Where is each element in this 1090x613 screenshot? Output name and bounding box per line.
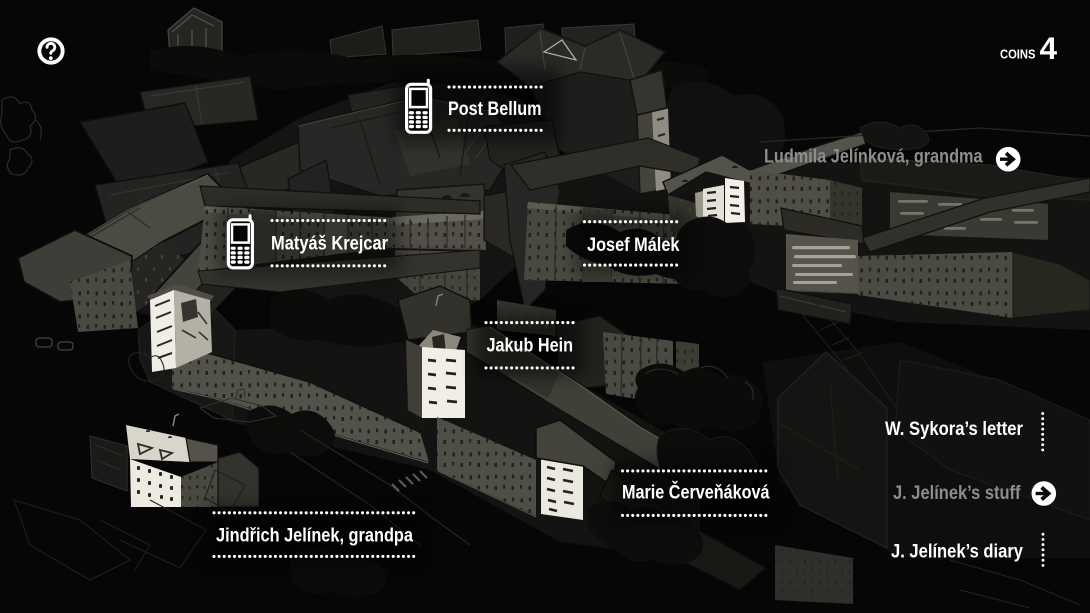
svg-text:Matyáš Krejcar: Matyáš Krejcar bbox=[271, 234, 389, 255]
svg-text:J. Jelínek’s diary: J. Jelínek’s diary bbox=[891, 542, 1023, 563]
svg-text:Ludmila Jelínková, grandma: Ludmila Jelínková, grandma bbox=[764, 147, 983, 168]
svg-text:Post Bellum: Post Bellum bbox=[448, 99, 542, 120]
svg-text:COINS: COINS bbox=[1000, 47, 1036, 61]
svg-text:4: 4 bbox=[1040, 30, 1058, 66]
svg-text:J. Jelínek’s stuff: J. Jelínek’s stuff bbox=[893, 483, 1021, 504]
svg-text:Jindřich Jelínek, grandpa: Jindřich Jelínek, grandpa bbox=[216, 526, 413, 547]
svg-text:W. Sykora’s letter: W. Sykora’s letter bbox=[885, 419, 1024, 440]
svg-text:Josef Málek: Josef Málek bbox=[587, 235, 680, 256]
svg-text:Marie Červeňáková: Marie Červeňáková bbox=[622, 482, 770, 504]
svg-text:Jakub Hein: Jakub Hein bbox=[487, 335, 574, 356]
